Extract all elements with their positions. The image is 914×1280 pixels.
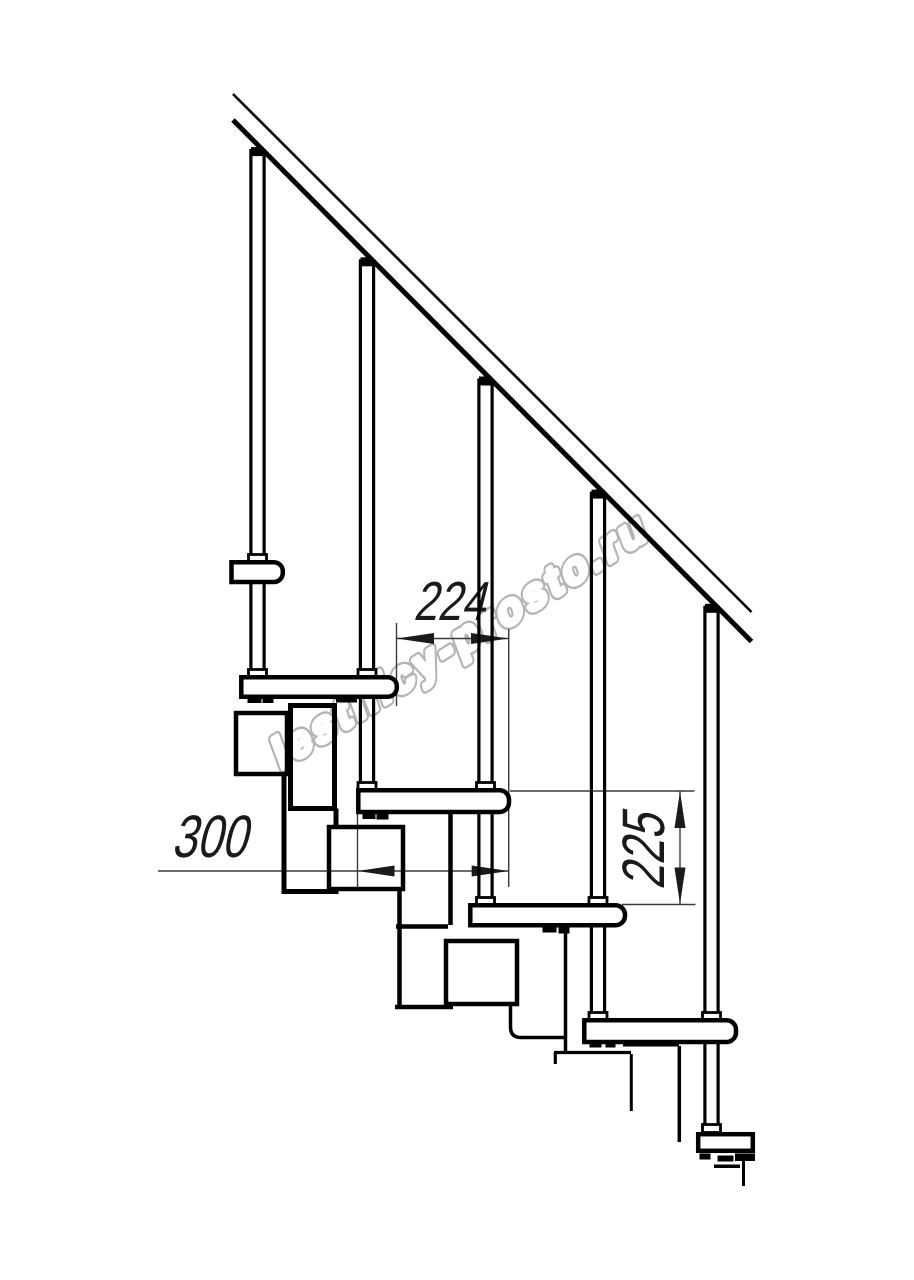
svg-text:224: 224 (410, 571, 497, 632)
